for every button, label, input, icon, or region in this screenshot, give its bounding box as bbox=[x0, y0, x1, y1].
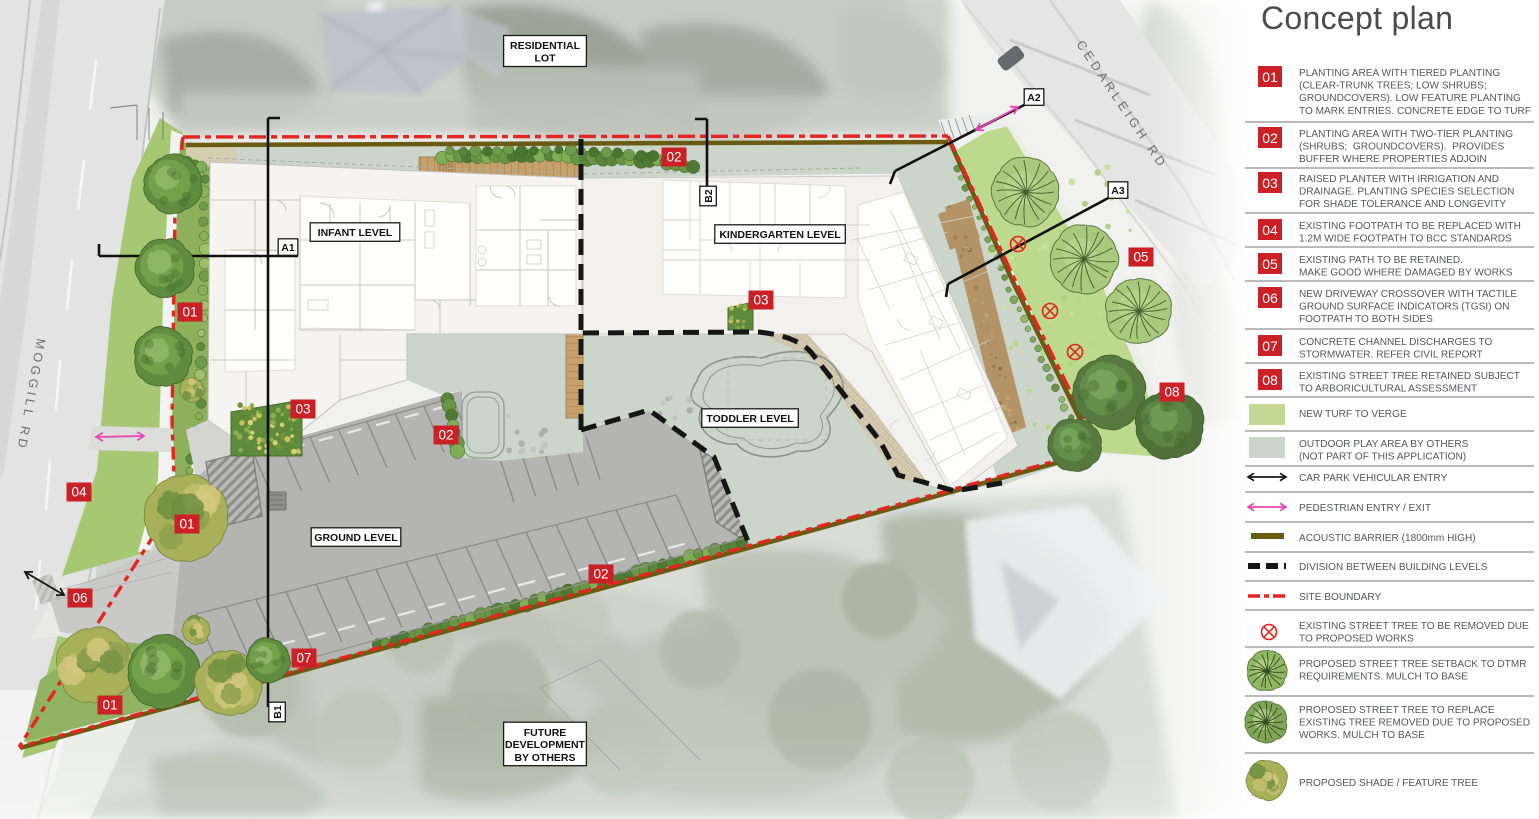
svg-text:KINDERGARTEN LEVEL: KINDERGARTEN LEVEL bbox=[719, 229, 841, 241]
svg-text:06: 06 bbox=[1262, 290, 1278, 306]
svg-text:04: 04 bbox=[1262, 222, 1278, 238]
svg-text:RESIDENTIAL: RESIDENTIAL bbox=[510, 40, 581, 52]
svg-text:A2: A2 bbox=[1027, 92, 1041, 104]
svg-text:FUTURE: FUTURE bbox=[524, 727, 567, 739]
svg-text:03: 03 bbox=[295, 402, 310, 417]
svg-text:05: 05 bbox=[1262, 256, 1278, 272]
svg-text:SITE BOUNDARY: SITE BOUNDARY bbox=[1299, 592, 1382, 603]
svg-text:EXISTING FOOTPATH TO BE REPLAC: EXISTING FOOTPATH TO BE REPLACED WITH1.2… bbox=[1299, 221, 1521, 245]
svg-text:02: 02 bbox=[593, 567, 608, 582]
svg-text:INFANT LEVEL: INFANT LEVEL bbox=[318, 227, 393, 239]
svg-text:A3: A3 bbox=[1111, 185, 1125, 197]
svg-text:OUTDOOR PLAY AREA BY OTHERS(NO: OUTDOOR PLAY AREA BY OTHERS(NOT PART OF … bbox=[1299, 439, 1469, 463]
svg-text:CONCRETE CHANNEL DISCHARGES TO: CONCRETE CHANNEL DISCHARGES TOSTORMWATER… bbox=[1299, 337, 1492, 361]
svg-text:03: 03 bbox=[1262, 175, 1278, 191]
svg-text:PLANTING AREA WITH TWO-TIER PL: PLANTING AREA WITH TWO-TIER PLANTING(SHR… bbox=[1299, 129, 1513, 165]
svg-text:01: 01 bbox=[102, 698, 117, 713]
svg-text:DIVISION BETWEEN BUILDING LEVE: DIVISION BETWEEN BUILDING LEVELS bbox=[1299, 562, 1488, 573]
svg-text:04: 04 bbox=[71, 485, 87, 500]
svg-text:PEDESTRIAN ENTRY / EXIT: PEDESTRIAN ENTRY / EXIT bbox=[1299, 503, 1431, 514]
svg-text:GROUND LEVEL: GROUND LEVEL bbox=[314, 532, 398, 544]
svg-text:B2: B2 bbox=[703, 189, 715, 203]
svg-text:08: 08 bbox=[1164, 385, 1179, 400]
svg-text:07: 07 bbox=[296, 651, 311, 666]
svg-text:BY OTHERS: BY OTHERS bbox=[514, 752, 575, 764]
svg-text:06: 06 bbox=[72, 591, 87, 606]
svg-text:07: 07 bbox=[1262, 338, 1278, 354]
svg-text:02: 02 bbox=[666, 150, 681, 165]
svg-text:01: 01 bbox=[1262, 69, 1278, 85]
svg-text:02: 02 bbox=[438, 428, 453, 443]
svg-text:02: 02 bbox=[1262, 130, 1278, 146]
svg-text:05: 05 bbox=[1133, 250, 1148, 265]
svg-text:NEW TURF TO VERGE: NEW TURF TO VERGE bbox=[1299, 409, 1407, 420]
svg-text:01: 01 bbox=[179, 517, 194, 532]
svg-text:TODDLER LEVEL: TODDLER LEVEL bbox=[706, 413, 794, 425]
svg-text:01: 01 bbox=[182, 305, 197, 320]
svg-text:PROPOSED SHADE / FEATURE TREE: PROPOSED SHADE / FEATURE TREE bbox=[1299, 778, 1478, 789]
svg-text:A1: A1 bbox=[281, 242, 295, 254]
svg-text:DEVELOPMENT: DEVELOPMENT bbox=[505, 739, 586, 751]
svg-text:ACOUSTIC BARRIER (1800mm HIGH): ACOUSTIC BARRIER (1800mm HIGH) bbox=[1299, 533, 1476, 544]
svg-text:PLANTING AREA WITH TIERED PLAN: PLANTING AREA WITH TIERED PLANTING(CLEAR… bbox=[1299, 68, 1531, 117]
svg-text:Concept plan: Concept plan bbox=[1261, 0, 1453, 36]
svg-text:LOT: LOT bbox=[535, 53, 557, 65]
svg-text:B1: B1 bbox=[272, 705, 284, 719]
svg-text:08: 08 bbox=[1262, 372, 1278, 388]
svg-text:CAR PARK VEHICULAR ENTRY: CAR PARK VEHICULAR ENTRY bbox=[1299, 473, 1448, 484]
svg-text:03: 03 bbox=[753, 293, 768, 308]
svg-text:RAISED PLANTER WITH IRRIGATION: RAISED PLANTER WITH IRRIGATION ANDDRAINA… bbox=[1299, 174, 1514, 210]
